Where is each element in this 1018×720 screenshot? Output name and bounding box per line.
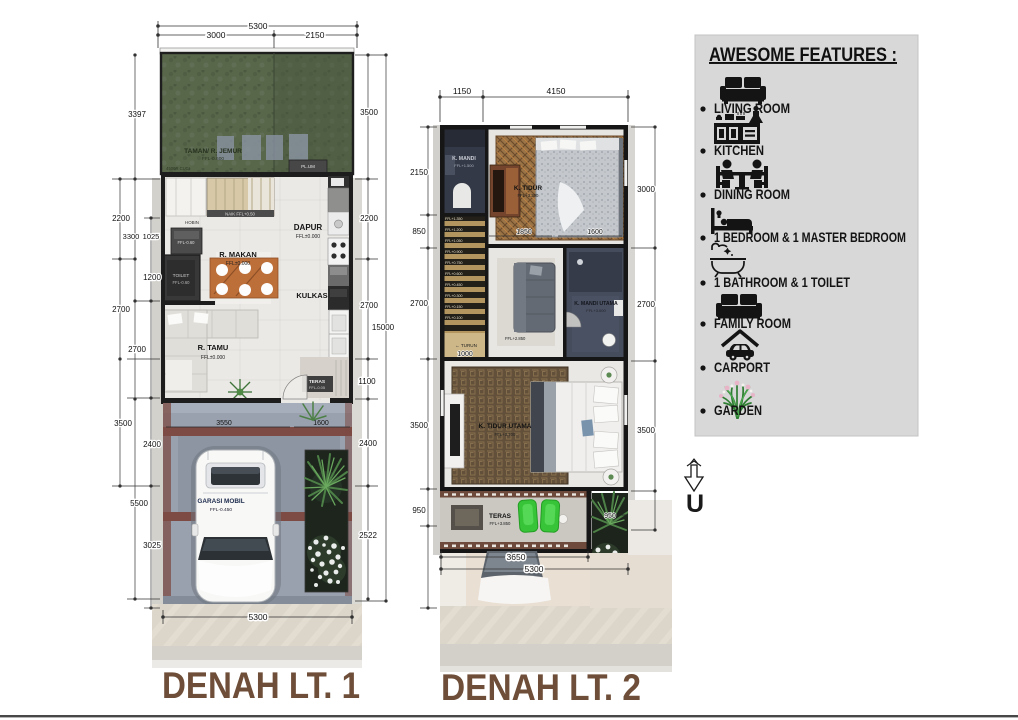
svg-text:5300: 5300 (249, 21, 268, 31)
svg-text:FFL+0.300: FFL+0.300 (445, 294, 462, 298)
svg-text:FFL+3.200: FFL+3.200 (518, 193, 540, 198)
svg-text:3000: 3000 (207, 30, 226, 40)
svg-text:FFL±0.000: FFL±0.000 (201, 355, 225, 361)
svg-text:FFL+0.900: FFL+0.900 (445, 250, 462, 254)
svg-text:3500: 3500 (637, 426, 655, 435)
svg-text:FFL+3.700: FFL+3.700 (495, 432, 517, 437)
svg-text:1 BEDROOM & 1 MASTER BEDROOM: 1 BEDROOM & 1 MASTER BEDROOM (714, 229, 906, 245)
svg-text:FFL+1.200: FFL+1.200 (445, 228, 462, 232)
svg-text:1 BATHROOM & 1 TOILET: 1 BATHROOM & 1 TOILET (714, 274, 850, 290)
svg-text:K. TIDUR UTAMA: K. TIDUR UTAMA (479, 423, 532, 430)
svg-text:R. TAMU: R. TAMU (198, 343, 229, 352)
svg-text:FFL+0.150: FFL+0.150 (445, 305, 462, 309)
svg-text:1100: 1100 (358, 377, 376, 386)
svg-text:3550: 3550 (216, 420, 232, 427)
svg-text:2700: 2700 (410, 299, 428, 308)
svg-text:NAIK FFL+0.50: NAIK FFL+0.50 (225, 212, 255, 217)
svg-text:LIVING ROOM: LIVING ROOM (714, 100, 790, 116)
svg-text:FFL-0.450: FFL-0.450 (210, 507, 232, 513)
svg-text:2700: 2700 (128, 345, 146, 354)
svg-text:FFL+0.600: FFL+0.600 (445, 272, 462, 276)
svg-text:3500: 3500 (410, 421, 428, 430)
svg-text:FFL-0.60: FFL-0.60 (178, 240, 196, 245)
svg-text:3500: 3500 (114, 419, 132, 428)
svg-text:TERAS: TERAS (489, 513, 512, 520)
svg-text:950: 950 (604, 513, 616, 520)
svg-text:1200: 1200 (143, 273, 161, 282)
svg-text:KITCHEN: KITCHEN (714, 142, 764, 158)
svg-text:5500: 5500 (130, 499, 148, 508)
svg-text:FFL+0.100: FFL+0.100 (445, 316, 462, 320)
svg-text:2200: 2200 (360, 214, 378, 223)
svg-text:FFL+1.050: FFL+1.050 (445, 239, 462, 243)
svg-text:2150: 2150 (306, 30, 325, 40)
svg-text:950: 950 (412, 506, 426, 515)
svg-text:DINING ROOM: DINING ROOM (714, 186, 790, 202)
svg-text:850: 850 (412, 227, 426, 236)
svg-text:4150: 4150 (547, 86, 566, 96)
svg-text:K. MANDI UTAMA: K. MANDI UTAMA (574, 301, 618, 307)
svg-text:5300: 5300 (249, 612, 268, 622)
svg-text:TAMAN/ R. JEMUR: TAMAN/ R. JEMUR (184, 148, 242, 155)
svg-text:2400: 2400 (359, 439, 377, 448)
svg-text:1025: 1025 (143, 232, 160, 241)
svg-text:3500: 3500 (360, 108, 378, 117)
svg-text:3300: 3300 (123, 232, 140, 241)
svg-text:5300: 5300 (525, 564, 544, 574)
svg-text:3397: 3397 (128, 110, 146, 119)
svg-text:3650: 3650 (507, 552, 526, 562)
svg-text:FFL-0.60: FFL-0.60 (173, 280, 191, 285)
svg-text:FFL+3.850: FFL+3.850 (490, 521, 512, 526)
svg-text:AWESOME FEATURES :: AWESOME FEATURES : (709, 44, 897, 66)
svg-text:FFL±0.000: FFL±0.000 (226, 261, 250, 267)
svg-text:2522: 2522 (359, 531, 377, 540)
svg-text:K. TIDUR: K. TIDUR (514, 185, 542, 192)
svg-text:DAPUR: DAPUR (294, 223, 323, 232)
svg-text:3025: 3025 (143, 541, 161, 550)
svg-text:1000: 1000 (457, 351, 473, 358)
svg-text:CARPORT: CARPORT (714, 359, 770, 375)
svg-text:1150: 1150 (453, 86, 472, 96)
svg-text:2150: 2150 (410, 168, 428, 177)
svg-text:1850: 1850 (516, 229, 532, 236)
svg-text:FFL+1.350: FFL+1.350 (445, 217, 462, 221)
svg-text:2700: 2700 (112, 305, 130, 314)
svg-text:2700: 2700 (637, 300, 655, 309)
svg-text:HOBIN: HOBIN (185, 220, 199, 225)
svg-text:KULKAS: KULKAS (296, 291, 327, 300)
svg-text:GARASI MOBIL: GARASI MOBIL (197, 498, 244, 505)
svg-text:K. MANDI: K. MANDI (452, 156, 476, 162)
svg-text:4500R CUCI: 4500R CUCI (166, 166, 190, 171)
svg-text:FFL+2.850: FFL+2.850 (505, 336, 526, 341)
svg-text:1600: 1600 (313, 420, 329, 427)
svg-text:FFL+0.450: FFL+0.450 (445, 283, 462, 287)
svg-text:U: U (686, 490, 704, 518)
svg-text:FFL±0.000: FFL±0.000 (296, 234, 320, 240)
svg-text:DENAH LT. 1: DENAH LT. 1 (162, 665, 360, 706)
svg-text:1600: 1600 (587, 229, 603, 236)
svg-text:2400: 2400 (143, 440, 161, 449)
svg-text:DENAH LT. 2: DENAH LT. 2 (441, 667, 641, 708)
svg-text:R. MAKAN: R. MAKAN (219, 250, 257, 259)
svg-text:PL.UM: PL.UM (301, 164, 315, 169)
svg-text:← TURUN: ← TURUN (455, 343, 477, 348)
svg-text:2700: 2700 (360, 301, 378, 310)
svg-text:TOILET: TOILET (173, 273, 190, 279)
svg-text:FFL+0.750: FFL+0.750 (445, 261, 462, 265)
svg-text:2200: 2200 (112, 214, 130, 223)
svg-text:FFL-0.600: FFL-0.600 (202, 156, 224, 162)
svg-text:FAMILY ROOM: FAMILY ROOM (714, 315, 791, 331)
svg-text:FFL+1.500: FFL+1.500 (454, 163, 474, 168)
svg-text:FFL-0.05: FFL-0.05 (309, 385, 326, 390)
svg-text:3000: 3000 (637, 185, 655, 194)
svg-text:GARDEN: GARDEN (714, 402, 762, 418)
svg-text:FFL+3.000: FFL+3.000 (586, 308, 606, 313)
svg-text:15000: 15000 (372, 323, 395, 332)
